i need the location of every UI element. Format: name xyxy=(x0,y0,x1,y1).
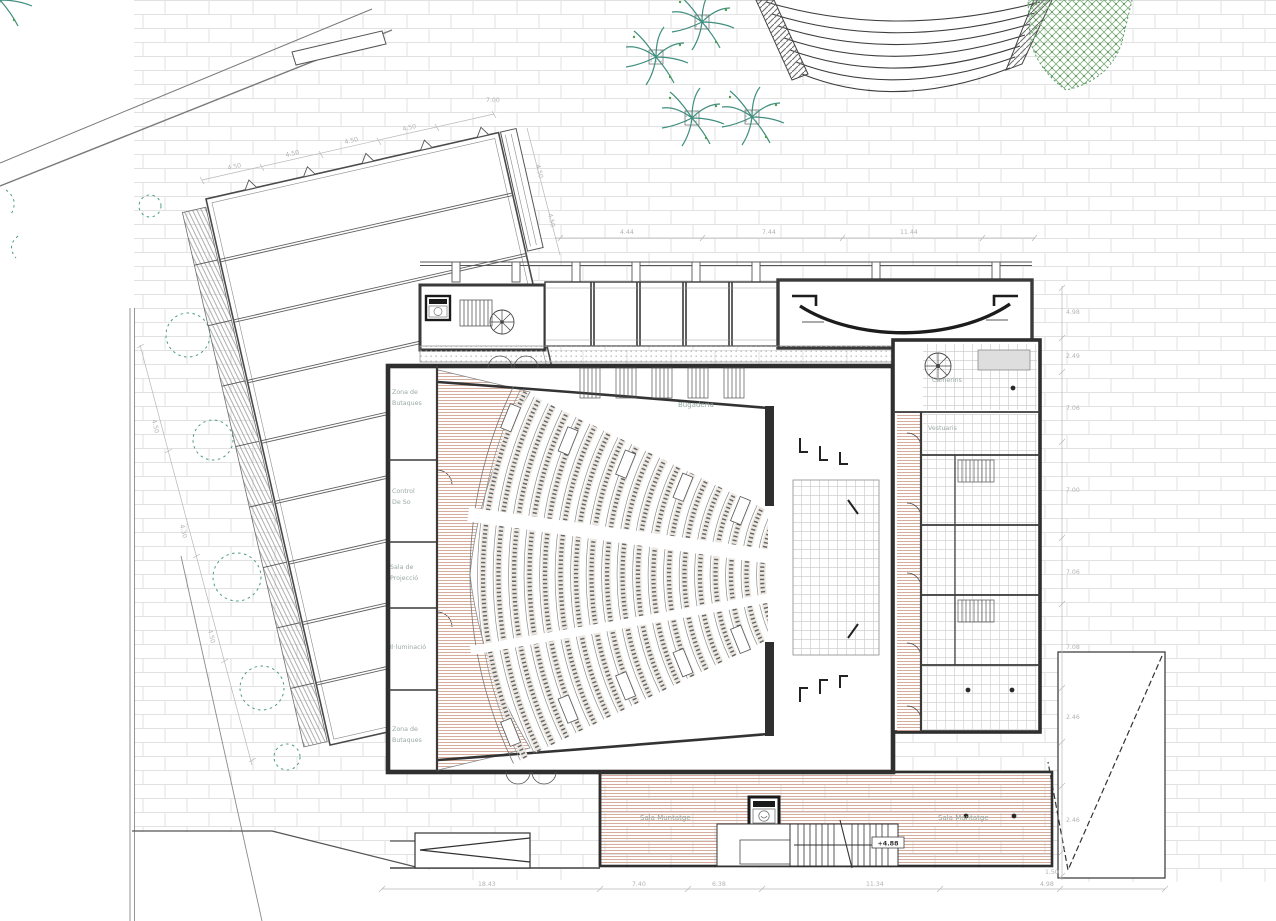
floor-plan-canvas: +4.88 4.50 4.50 4.50 4.50 7.0 xyxy=(0,0,1276,921)
dim-top-apex: 7.00 xyxy=(486,97,500,104)
dim-right-4: 7.00 xyxy=(1066,487,1080,494)
dim-plaza-2: 7.44 xyxy=(762,229,776,236)
room-label-projeccio-1: Sala de xyxy=(390,564,413,571)
room-label-projeccio-2: Projecció xyxy=(390,574,418,582)
elevator-left xyxy=(426,296,450,320)
dim-right-3: 7.06 xyxy=(1066,405,1080,412)
level-marker: +4.88 xyxy=(872,837,904,848)
dim-right-6: 7.08 xyxy=(1066,644,1080,651)
dim-right-9: 1.50 xyxy=(1045,869,1059,876)
room-label-control-2: De So xyxy=(392,499,411,506)
upper-hall xyxy=(778,280,1032,348)
elevator-terrace xyxy=(749,797,779,827)
service-corridor xyxy=(897,412,921,732)
right-wing xyxy=(893,340,1040,732)
dim-right-2: 2.49 xyxy=(1066,353,1080,360)
room-label-illuminacio: Il·luminació xyxy=(390,643,426,651)
dim-bottom-1: 18.43 xyxy=(478,881,496,888)
dim-right-5: 7.06 xyxy=(1066,569,1080,576)
level-value: +4.88 xyxy=(877,840,899,848)
room-label-vestuaris: Vestuaris xyxy=(928,425,957,432)
room-label-bugaderia: Bugaderia xyxy=(678,401,714,409)
walkway-strip xyxy=(420,346,902,362)
spiral-stair-right xyxy=(925,353,951,379)
ramp-southwest xyxy=(415,833,530,868)
floor-plan-sheet: +4.88 4.50 4.50 4.50 4.50 7.0 xyxy=(0,0,1276,921)
room-label-sala-right: Sala Muntatge xyxy=(938,814,989,822)
spiral-stair-left xyxy=(490,310,514,334)
dim-right-1: 4.98 xyxy=(1066,309,1080,316)
room-label-zona-top-1: Zona de xyxy=(392,389,418,396)
left-service-block xyxy=(420,285,545,350)
foyer-window-band xyxy=(545,282,778,346)
ramp-southeast xyxy=(1048,652,1165,878)
dim-bottom-5: 4.98 xyxy=(1040,881,1054,888)
room-label-zona-bottom-2: Butaques xyxy=(392,737,422,744)
terrace-stair xyxy=(717,820,898,868)
dim-plaza-3: 11.44 xyxy=(900,229,918,236)
dim-plaza-1: 4.44 xyxy=(620,229,634,236)
room-label-camerins: Camerins xyxy=(932,377,962,384)
room-label-zona-bottom-1: Zona de xyxy=(392,726,418,733)
room-label-sala-left: Sala Muntatge xyxy=(640,814,691,822)
dim-right-8: 2.46 xyxy=(1066,817,1080,824)
room-label-zona-top-2: Butaques xyxy=(392,400,422,407)
room-label-control-1: Control xyxy=(392,488,415,495)
dim-bottom-4: 11.34 xyxy=(866,881,884,888)
dim-bottom-2: 7.40 xyxy=(632,881,646,888)
dim-bottom-3: 6.38 xyxy=(712,881,726,888)
dim-right-7: 2.46 xyxy=(1066,714,1080,721)
bench-sofa xyxy=(978,350,1030,370)
